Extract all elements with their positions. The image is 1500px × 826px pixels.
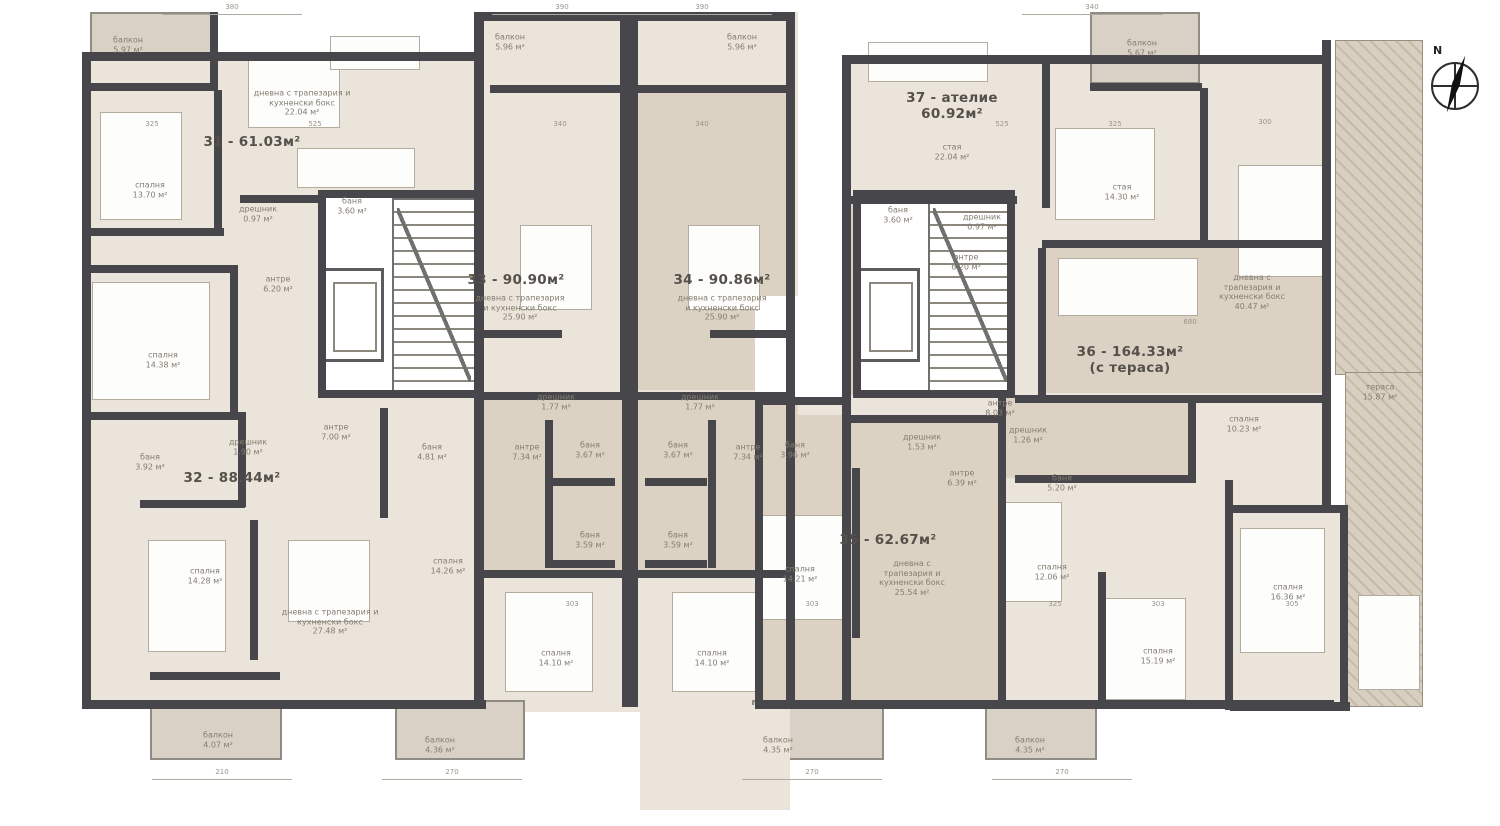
apartment-label: 35 - 62.67м² (839, 532, 936, 548)
dimension-line (152, 779, 292, 780)
furniture-item (672, 592, 760, 692)
room-label: баня 5.20 м² (1047, 473, 1077, 492)
wall-segment (998, 398, 1006, 707)
room-label: дневна с трапезария и кухненски бокс 27.… (275, 608, 385, 637)
furniture-item (100, 112, 182, 220)
wall-segment (1042, 60, 1050, 208)
dimension-label: 325 (145, 120, 158, 128)
wall-segment (150, 672, 280, 680)
wall-segment (553, 478, 615, 486)
north-compass: N (1425, 52, 1489, 116)
room-label: стая 22.04 м² (935, 142, 970, 161)
wall-segment (1042, 240, 1324, 248)
dimension-label: 270 (1055, 768, 1068, 776)
room-label: балкон 5.96 м² (727, 32, 757, 51)
wall-segment (1090, 83, 1202, 91)
room-floor (482, 398, 798, 573)
apartment-label: 37 - ателие 60.92м² (906, 90, 998, 122)
wall-segment (238, 412, 246, 507)
wall-segment (240, 195, 326, 203)
wall-segment (842, 55, 1330, 64)
furniture-item (297, 148, 415, 188)
room-label: дневна с трапезария и кухненски бокс 25.… (474, 294, 566, 323)
apartment-label: 31 - 61.03м² (203, 134, 300, 150)
wall-segment (645, 478, 707, 486)
dimension-line (162, 14, 302, 15)
room-label: антре 7.34 м² (512, 442, 542, 461)
wall-segment (622, 572, 638, 707)
terrace-hatch (1335, 40, 1423, 375)
room-label: антре 7.34 м² (733, 442, 763, 461)
wall-segment (1340, 505, 1348, 709)
dimension-label: 303 (565, 600, 578, 608)
room-floor (640, 705, 790, 810)
wall-segment (82, 412, 238, 420)
dimension-label: 270 (805, 768, 818, 776)
wall-segment (318, 390, 484, 398)
room-label: баня 3.59 м² (663, 530, 693, 549)
wall-segment (230, 265, 238, 415)
room-label: дневна с трапезария и кухненски бокс 22.… (250, 89, 354, 118)
balcony-floor (395, 700, 525, 760)
elevator-shaft (858, 268, 920, 362)
dimension-line (1022, 14, 1162, 15)
wall-segment (318, 193, 326, 397)
dimension-label: 210 (215, 768, 228, 776)
wall-segment (1225, 480, 1233, 710)
room-label: балкон 4.36 м² (425, 735, 455, 754)
furniture-item (505, 592, 593, 692)
wall-segment (1188, 395, 1196, 483)
dimension-label: 325 (1048, 600, 1061, 608)
room-label: спалня 14.21 м² (783, 564, 818, 583)
wall-segment (853, 390, 1015, 398)
furniture-item (1055, 128, 1155, 220)
furniture-item (1058, 258, 1198, 316)
dimension-label: 390 (555, 3, 568, 11)
room-label: спалня 14.10 м² (539, 648, 574, 667)
room-label: дрешник 1.77 м² (681, 392, 719, 411)
wall-segment (210, 12, 218, 88)
wall-segment (1038, 248, 1046, 398)
room-label: баня 3.96 м² (780, 440, 810, 459)
wall-segment (708, 420, 716, 568)
room-label: баня 4.81 м² (417, 442, 447, 461)
furniture-item (1004, 502, 1062, 602)
room-label: антре 6.39 м² (947, 468, 977, 487)
dimension-label: 390 (695, 3, 708, 11)
room-label: дрешник 1.53 м² (903, 432, 941, 451)
apartment-label: 36 - 164.33м² (с тераса) (1077, 344, 1184, 376)
dimension-label: 525 (995, 120, 1008, 128)
room-label: дневна с трапезария и кухненски бокс 25.… (676, 294, 768, 323)
wall-segment (755, 700, 850, 709)
dimension-line (632, 14, 772, 15)
wall-segment (82, 228, 224, 236)
room-label: баня 3.59 м² (575, 530, 605, 549)
dimension-line (742, 779, 882, 780)
room-label: тераса 15.87 м² (1363, 382, 1398, 401)
room-label: спалня 14.26 м² (431, 556, 466, 575)
wall-segment (853, 190, 1015, 198)
wall-segment (82, 52, 91, 709)
wall-segment (1200, 88, 1208, 243)
dimension-label: 303 (805, 600, 818, 608)
dimension-label: 270 (445, 768, 458, 776)
room-label: антре 6.20 м² (951, 252, 981, 271)
furniture-item (92, 282, 210, 400)
room-label: дневна с трапезария и кухненски бокс 25.… (872, 559, 952, 597)
room-label: баня 3.60 м² (337, 196, 367, 215)
room-label: балкон 5.96 м² (495, 32, 525, 51)
furniture-item (148, 540, 226, 652)
room-label: дрешник 0.97 м² (963, 212, 1001, 231)
room-label: дрешник 1.90 м² (229, 437, 267, 456)
wall-segment (1007, 193, 1015, 397)
elevator-shaft (322, 268, 384, 362)
wall-segment (482, 392, 792, 400)
room-label: дрешник 1.26 м² (1009, 425, 1047, 444)
room-label: спалня 15.19 м² (1141, 646, 1176, 665)
apartment-label: 32 - 88.44м² (183, 470, 280, 486)
dimension-label: 305 (1285, 600, 1298, 608)
wall-segment (545, 420, 553, 568)
room-label: спалня 13.70 м² (133, 180, 168, 199)
room-label: антре 7.00 м² (321, 422, 351, 441)
wall-segment (1098, 572, 1106, 707)
dimension-label: 340 (1085, 3, 1098, 11)
core-void (755, 296, 851, 398)
room-label: балкон 4.07 м² (203, 730, 233, 749)
room-label: спалня 12.06 м² (1035, 562, 1070, 581)
staircase (392, 198, 476, 392)
room-label: балкон 5.67 м² (1127, 38, 1157, 57)
room-label: стая 14.30 м² (1105, 182, 1140, 201)
wall-segment (140, 500, 245, 508)
wall-segment (482, 330, 562, 338)
room-label: спалня 10.23 м² (1227, 414, 1262, 433)
dimension-label: 380 (225, 3, 238, 11)
wall-segment (842, 700, 1334, 709)
wall-segment (82, 700, 486, 709)
room-label: балкон 4.35 м² (763, 735, 793, 754)
room-label: антре 8.03 м² (985, 398, 1015, 417)
wall-segment (842, 55, 851, 707)
room-label: дрешник 1.77 м² (537, 392, 575, 411)
wall-segment (853, 193, 861, 397)
compass-north-letter: N (1433, 44, 1442, 57)
wall-segment (620, 12, 638, 397)
dimension-label: 525 (308, 120, 321, 128)
room-label: дневна с трапезария и кухненски бокс 40.… (1209, 273, 1295, 311)
dimension-label: 340 (553, 120, 566, 128)
room-label: спалня 14.10 м² (695, 648, 730, 667)
room-label: дрешник 0.97 м² (239, 204, 277, 223)
room-label: антре 6.20 м² (263, 274, 293, 293)
dimension-label: 340 (695, 120, 708, 128)
wall-segment (1015, 475, 1195, 483)
dimension-label: 303 (1151, 600, 1164, 608)
apartment-label: 33 - 90.90м² (467, 272, 564, 288)
room-label: спалня 14.28 м² (188, 566, 223, 585)
wall-segment (553, 560, 615, 568)
dimension-label: 325 (1108, 120, 1121, 128)
dimension-label: 300 (1258, 118, 1271, 126)
room-label: баня 3.67 м² (575, 440, 605, 459)
wall-segment (852, 468, 860, 638)
wall-segment (380, 408, 388, 518)
furniture-item (1238, 165, 1326, 277)
wall-segment (842, 415, 1000, 423)
wall-segment (710, 330, 790, 338)
room-label: спалня 16.36 м² (1271, 582, 1306, 601)
room-label: баня 3.60 м² (883, 205, 913, 224)
wall-segment (622, 395, 638, 580)
wall-segment (490, 85, 625, 93)
wall-segment (250, 520, 258, 660)
dimension-line (992, 779, 1132, 780)
wall-segment (1015, 395, 1325, 403)
room-label: баня 3.92 м² (135, 452, 165, 471)
wall-segment (82, 265, 238, 273)
wall-segment (482, 570, 792, 578)
floor-plan-canvas: балкон 5.97 м²дневна с трапезария и кухн… (0, 0, 1500, 826)
wall-segment (635, 85, 790, 93)
dimension-line (492, 14, 632, 15)
dimension-label: 680 (1183, 318, 1196, 326)
dimension-line (382, 779, 522, 780)
apartment-label: 34 - 90.86м² (673, 272, 770, 288)
room-label: балкон 5.97 м² (113, 35, 143, 54)
wall-segment (214, 90, 222, 232)
wall-segment (755, 397, 847, 405)
wall-segment (1322, 40, 1331, 510)
furniture-item (1358, 595, 1420, 690)
wall-segment (786, 12, 795, 704)
wall-segment (474, 12, 484, 704)
wall-segment (645, 560, 707, 568)
wall-segment (90, 83, 218, 91)
room-label: спалня 14.38 м² (146, 350, 181, 369)
room-label: балкон 4.35 м² (1015, 735, 1045, 754)
room-label: баня 3.67 м² (663, 440, 693, 459)
